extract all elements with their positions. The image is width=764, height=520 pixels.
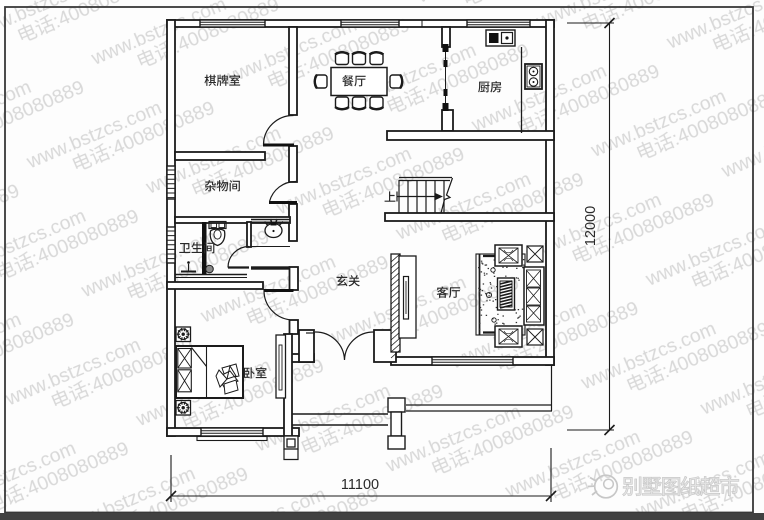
svg-text:12000: 12000 <box>583 206 599 246</box>
svg-text:11100: 11100 <box>341 477 379 493</box>
